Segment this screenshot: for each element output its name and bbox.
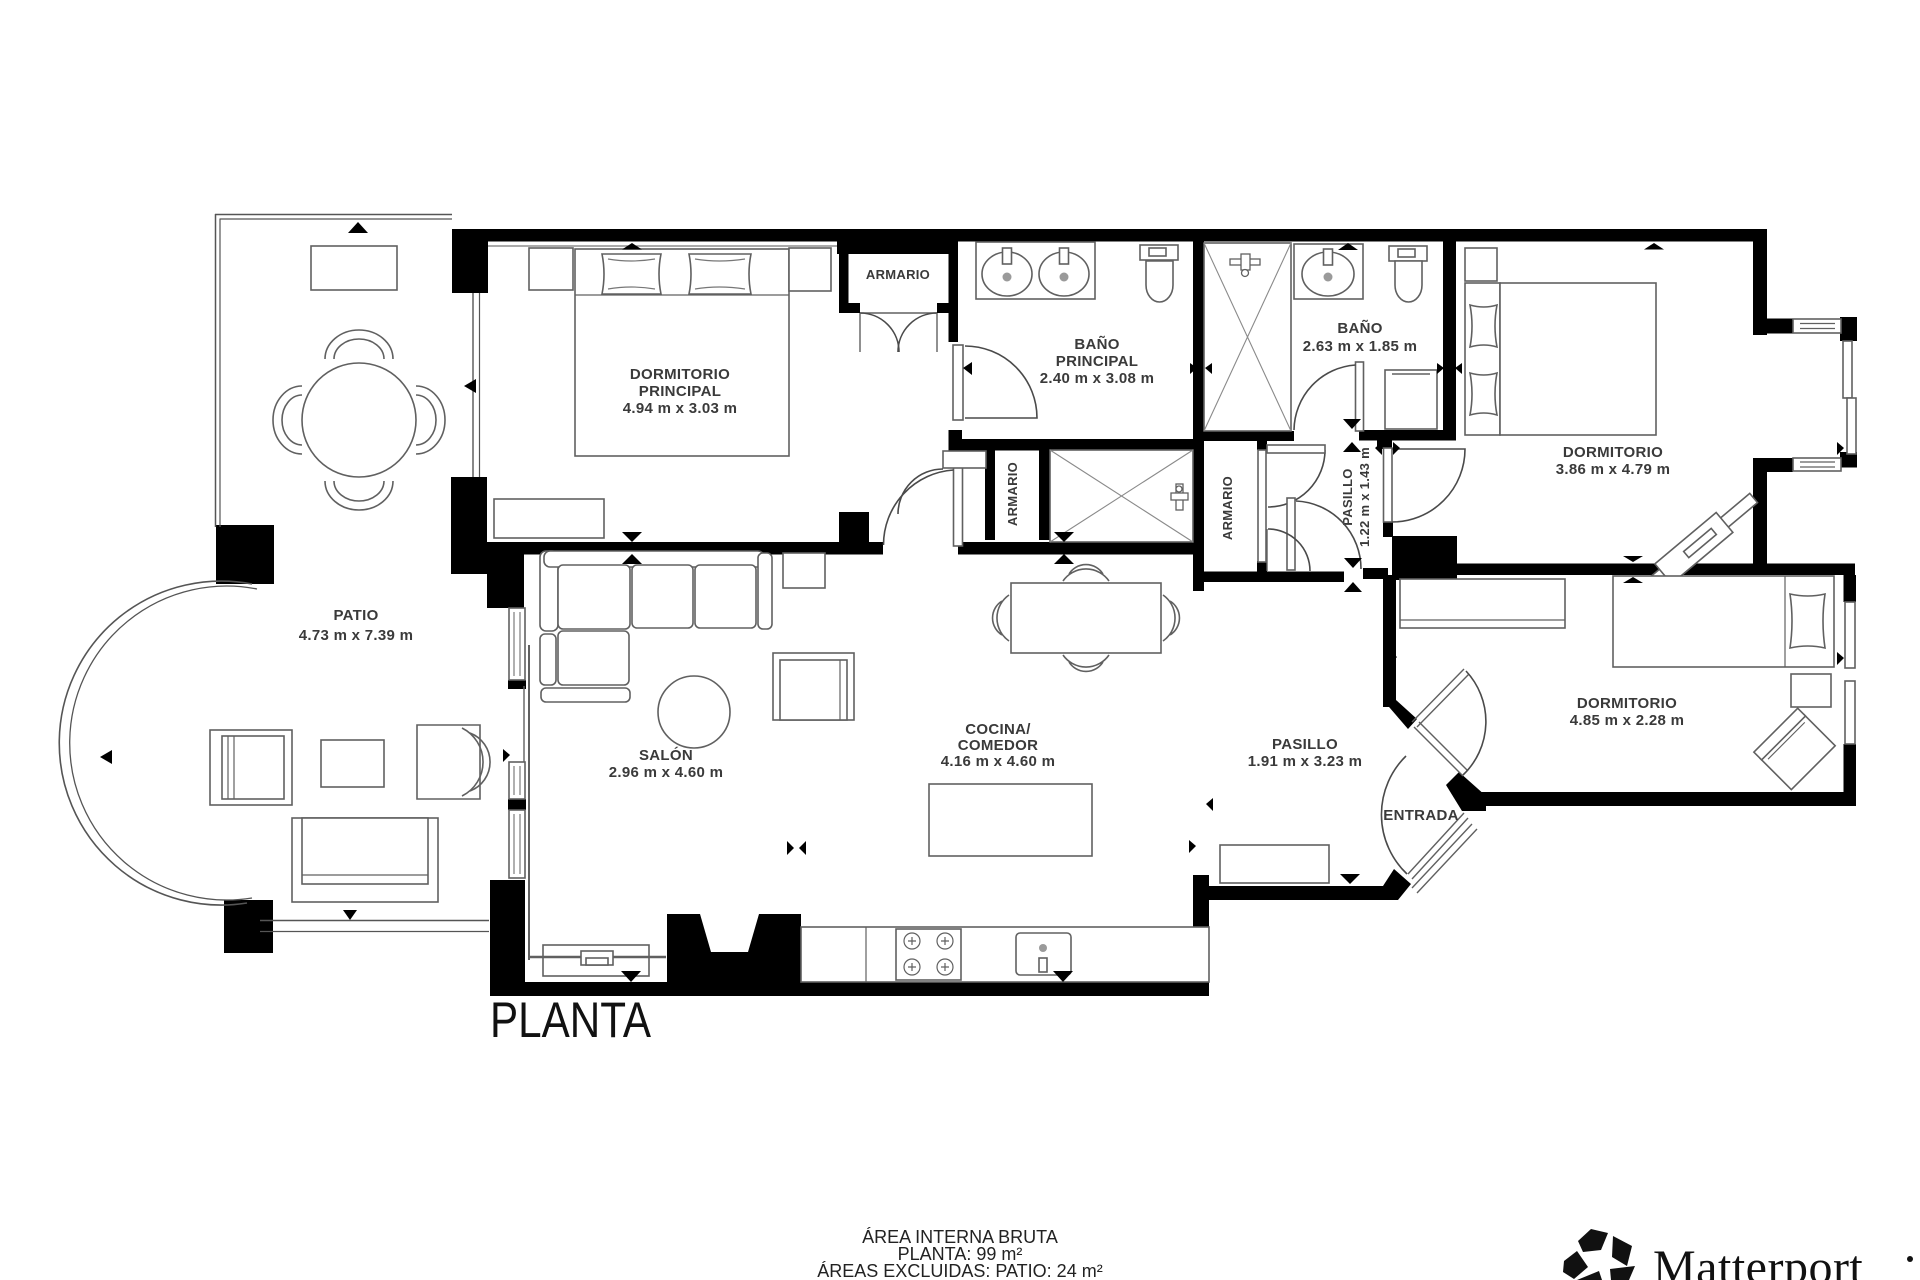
svg-text:3.86 m x 4.79 m: 3.86 m x 4.79 m: [1556, 461, 1671, 478]
svg-text:2.63 m x 1.85 m: 2.63 m x 1.85 m: [1303, 338, 1418, 355]
svg-text:4.85 m x 2.28 m: 4.85 m x 2.28 m: [1570, 712, 1685, 729]
svg-text:COCINA/: COCINA/: [965, 721, 1031, 738]
svg-text:ARMARIO: ARMARIO: [866, 267, 930, 282]
svg-text:DORMITORIO: DORMITORIO: [630, 366, 730, 383]
svg-text:1.22 m x 1.43 m: 1.22 m x 1.43 m: [1357, 447, 1372, 547]
svg-text:ARMARIO: ARMARIO: [1220, 476, 1235, 540]
svg-text:PASILLO: PASILLO: [1340, 468, 1355, 525]
svg-text:BAÑO: BAÑO: [1074, 335, 1119, 353]
svg-text:Matterport: Matterport: [1653, 1241, 1863, 1280]
svg-text:PATIO: PATIO: [333, 607, 378, 624]
svg-text:ÁREAS EXCLUIDAS: PATIO: 24 m²: ÁREAS EXCLUIDAS: PATIO: 24 m²: [817, 1261, 1102, 1280]
svg-text:PRINCIPAL: PRINCIPAL: [1056, 353, 1138, 370]
svg-text:4.73 m x 7.39 m: 4.73 m x 7.39 m: [299, 627, 414, 644]
svg-text:PASILLO: PASILLO: [1272, 736, 1338, 753]
svg-text:BAÑO: BAÑO: [1337, 319, 1382, 337]
svg-text:4.94 m x 3.03 m: 4.94 m x 3.03 m: [623, 400, 738, 417]
svg-text:DORMITORIO: DORMITORIO: [1563, 444, 1663, 461]
svg-text:DORMITORIO: DORMITORIO: [1577, 695, 1677, 712]
svg-text:PLANTA: PLANTA: [490, 992, 652, 1048]
svg-text:ENTRADA: ENTRADA: [1383, 807, 1458, 824]
svg-text:SALÓN: SALÓN: [639, 746, 693, 764]
svg-text:ARMARIO: ARMARIO: [1005, 462, 1020, 526]
svg-text:1.91 m x 3.23 m: 1.91 m x 3.23 m: [1248, 753, 1363, 770]
svg-text:PRINCIPAL: PRINCIPAL: [639, 383, 721, 400]
svg-text:2.96 m x 4.60 m: 2.96 m x 4.60 m: [609, 764, 724, 781]
svg-text:2.40 m x 3.08 m: 2.40 m x 3.08 m: [1040, 370, 1155, 387]
svg-text:4.16 m x 4.60 m: 4.16 m x 4.60 m: [941, 753, 1056, 770]
svg-text:COMEDOR: COMEDOR: [958, 737, 1038, 754]
